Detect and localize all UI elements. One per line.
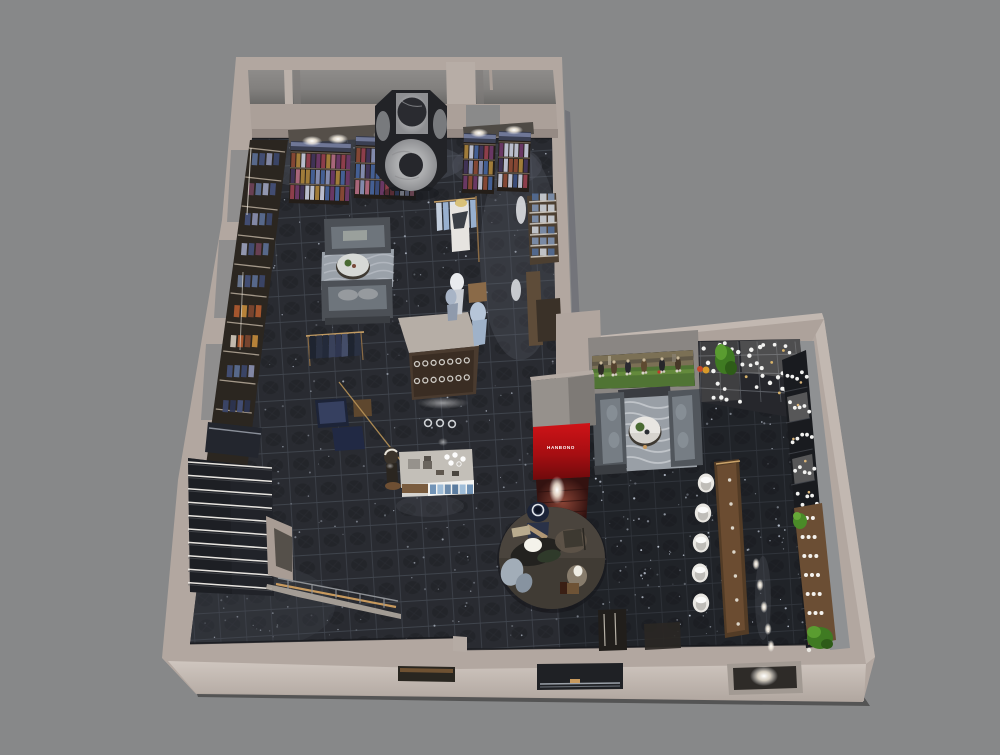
svg-text:HANBONO: HANBONO [547,445,575,450]
